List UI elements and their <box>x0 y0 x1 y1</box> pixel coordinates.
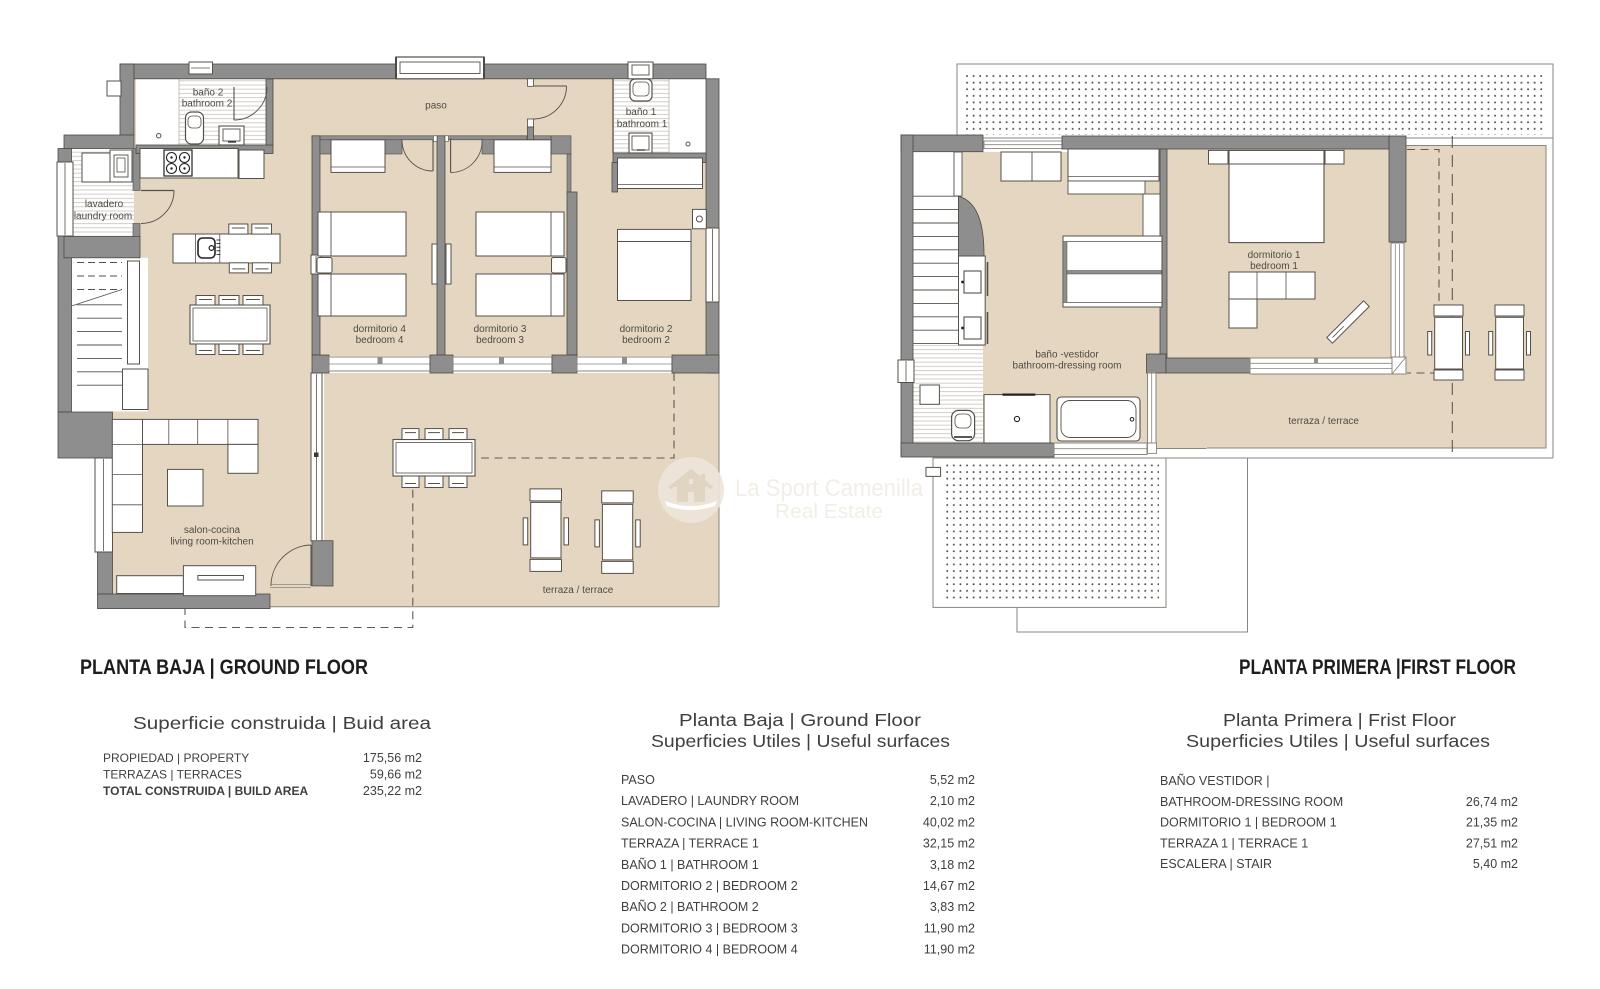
svg-text:5,40 m2: 5,40 m2 <box>1473 857 1518 871</box>
svg-text:dormitorio 1: dormitorio 1 <box>1248 250 1301 261</box>
svg-text:Real Estate: Real Estate <box>775 501 883 523</box>
svg-text:PROPIEDAD | PROPERTY: PROPIEDAD | PROPERTY <box>103 751 249 765</box>
svg-text:bedroom 3: bedroom 3 <box>476 335 524 346</box>
svg-text:2,10 m2: 2,10 m2 <box>930 794 975 808</box>
svg-text:La Sport Camenilla: La Sport Camenilla <box>735 475 924 502</box>
svg-text:bathroom 1: bathroom 1 <box>617 119 668 130</box>
svg-text:27,51 m2: 27,51 m2 <box>1466 836 1518 850</box>
svg-text:21,35 m2: 21,35 m2 <box>1466 816 1518 830</box>
svg-text:terraza / terrace: terraza / terrace <box>543 585 614 596</box>
svg-text:3,83 m2: 3,83 m2 <box>930 900 975 914</box>
svg-text:SALON-COCINA | LIVING ROOM-KIT: SALON-COCINA | LIVING ROOM-KITCHEN <box>621 815 868 829</box>
svg-text:11,90 m2: 11,90 m2 <box>924 921 975 935</box>
svg-text:baño 2: baño 2 <box>193 88 224 99</box>
svg-text:235,22 m2: 235,22 m2 <box>363 784 422 798</box>
svg-text:5,52 m2: 5,52 m2 <box>930 773 975 787</box>
svg-text:baño -vestidor: baño -vestidor <box>1035 350 1099 361</box>
svg-text:dormitorio 3: dormitorio 3 <box>474 324 527 335</box>
svg-text:bedroom 4: bedroom 4 <box>356 335 404 346</box>
svg-text:Superficie construida | Buid a: Superficie construida | Buid area <box>133 713 431 733</box>
svg-text:PASO: PASO <box>621 773 655 787</box>
svg-text:TERRAZAS | TERRACES: TERRAZAS | TERRACES <box>103 768 242 782</box>
svg-text:TERRAZA | TERRACE 1: TERRAZA | TERRACE 1 <box>621 837 759 851</box>
svg-text:TERRAZA 1 | TERRACE 1: TERRAZA 1 | TERRACE 1 <box>1160 836 1308 850</box>
svg-text:laundry room: laundry room <box>74 211 132 222</box>
svg-text:ESCALERA | STAIR: ESCALERA | STAIR <box>1160 857 1272 871</box>
svg-text:DORMITORIO 3 | BEDROOM 3: DORMITORIO 3 | BEDROOM 3 <box>621 921 798 935</box>
svg-text:BAÑO 1 | BATHROOM 1: BAÑO 1 | BATHROOM 1 <box>621 858 759 872</box>
svg-text:PLANTA BAJA | GROUND FLOOR: PLANTA BAJA | GROUND FLOOR <box>80 656 368 679</box>
svg-text:11,90 m2: 11,90 m2 <box>924 943 975 957</box>
svg-text:living room-kitchen: living room-kitchen <box>170 537 253 548</box>
svg-text:bathroom-dressing room: bathroom-dressing room <box>1013 361 1122 372</box>
svg-text:PLANTA PRIMERA |FIRST FLOOR: PLANTA PRIMERA |FIRST FLOOR <box>1239 656 1516 679</box>
svg-text:Superficies Utiles | Useful su: Superficies Utiles | Useful surfaces <box>1186 731 1490 751</box>
svg-text:BAÑO VESTIDOR |: BAÑO VESTIDOR | <box>1160 774 1270 788</box>
svg-text:14,67 m2: 14,67 m2 <box>923 879 975 893</box>
svg-text:dormitorio 2: dormitorio 2 <box>620 324 673 335</box>
svg-text:bedroom 1: bedroom 1 <box>1250 261 1298 272</box>
svg-text:Superficies Utiles | Useful su: Superficies Utiles | Useful surfaces <box>651 731 950 751</box>
svg-text:59,66 m2: 59,66 m2 <box>370 768 422 782</box>
svg-text:baño 1: baño 1 <box>626 107 657 118</box>
svg-text:175,56 m2: 175,56 m2 <box>363 751 422 765</box>
svg-text:BATHROOM-DRESSING ROOM: BATHROOM-DRESSING ROOM <box>1160 795 1343 809</box>
svg-text:salon-cocina: salon-cocina <box>184 525 241 536</box>
svg-text:DORMITORIO 4 | BEDROOM 4: DORMITORIO 4 | BEDROOM 4 <box>621 943 798 957</box>
svg-text:paso: paso <box>425 101 447 112</box>
svg-text:Planta Baja | Ground Floor: Planta Baja | Ground Floor <box>679 710 921 730</box>
svg-text:bathroom 2: bathroom 2 <box>182 99 233 110</box>
svg-text:lavadero: lavadero <box>85 199 124 210</box>
svg-text:Planta Primera | Frist Floor: Planta Primera | Frist Floor <box>1223 710 1456 730</box>
svg-text:32,15 m2: 32,15 m2 <box>923 837 975 851</box>
svg-text:terraza / terrace: terraza / terrace <box>1288 416 1359 427</box>
svg-text:TOTAL CONSTRUIDA | BUILD AREA: TOTAL CONSTRUIDA | BUILD AREA <box>103 784 308 798</box>
svg-text:LAVADERO | LAUNDRY ROOM: LAVADERO | LAUNDRY ROOM <box>621 794 799 808</box>
svg-text:bedroom 2: bedroom 2 <box>622 335 670 346</box>
svg-text:40,02 m2: 40,02 m2 <box>923 815 975 829</box>
svg-text:26,74 m2: 26,74 m2 <box>1466 795 1518 809</box>
svg-text:dormitorio 4: dormitorio 4 <box>353 324 406 335</box>
svg-text:3,18 m2: 3,18 m2 <box>930 858 975 872</box>
svg-text:DORMITORIO 2 | BEDROOM 2: DORMITORIO 2 | BEDROOM 2 <box>621 879 798 893</box>
svg-text:DORMITORIO 1 | BEDROOM 1: DORMITORIO 1 | BEDROOM 1 <box>1160 816 1337 830</box>
svg-text:BAÑO 2 | BATHROOM 2: BAÑO 2 | BATHROOM 2 <box>621 900 759 914</box>
